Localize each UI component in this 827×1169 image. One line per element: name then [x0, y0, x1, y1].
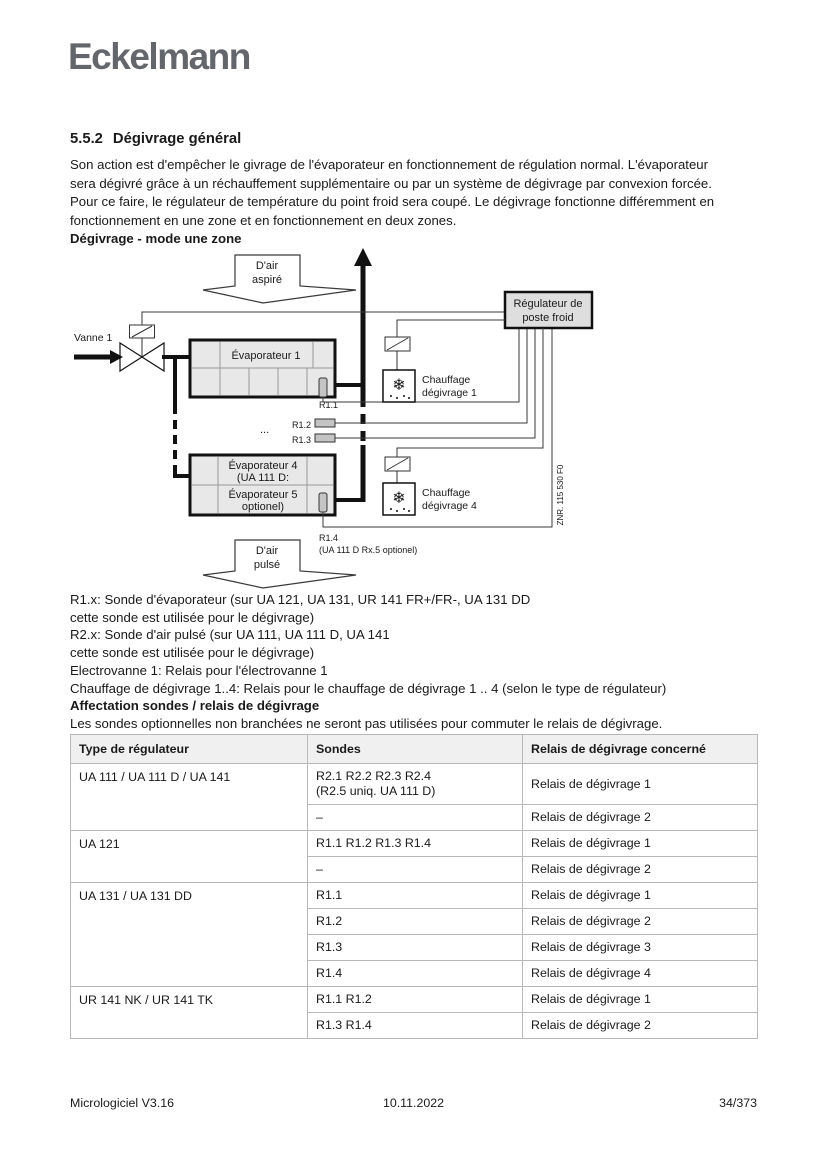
legend-block: R1.x: Sonde d'évaporateur (sur UA 121, U…	[70, 591, 770, 733]
sensor-r14-note: (UA 111 D Rx.5 optionel)	[319, 545, 417, 555]
snowflake-icon: ❄	[392, 377, 405, 394]
air-duct	[354, 248, 372, 502]
col-header-relais: Relais de dégivrage concerné	[523, 735, 758, 764]
legend-line: Chauffage de dégivrage 1..4: Relais pour…	[70, 680, 770, 698]
cell-type: UA 121	[71, 831, 308, 883]
air-in-label: aspiré	[252, 274, 282, 286]
cell-relais: Relais de dégivrage 1	[523, 883, 758, 909]
cell-sondes: R1.2	[308, 909, 523, 935]
section-title: Dégivrage général	[113, 131, 241, 147]
evaporator45-box: Évaporateur 4 (UA 111 D: Évaporateur 5 o…	[190, 455, 335, 515]
assignment-heading: Affectation sondes / relais de dégivrage	[70, 697, 770, 715]
sensor-r14-label: R1.4	[319, 533, 338, 543]
cell-type: UA 131 / UA 131 DD	[71, 883, 308, 987]
sensor-r12-label: R1.2	[292, 420, 311, 430]
legend-line: Electrovanne 1: Relais pour l'électrovan…	[70, 662, 770, 680]
cell-type: UA 111 / UA 111 D / UA 141	[71, 764, 308, 831]
heater4-relay-icon	[385, 457, 410, 483]
heater1-label: Chauffage	[422, 374, 470, 386]
sensor-r11-icon	[319, 378, 327, 397]
duct-up-arrowhead	[354, 248, 372, 266]
air-in-arrow: D'air aspiré	[203, 255, 356, 303]
legend-line: R2.x: Sonde d'air pulsé (sur UA 111, UA …	[70, 626, 770, 644]
evaporator1-box: Évaporateur 1	[190, 340, 335, 397]
wire-r11	[323, 328, 519, 402]
cell-sondes: –	[308, 805, 523, 831]
cell-relais: Relais de dégivrage 1	[523, 987, 758, 1013]
heater4-label2: dégivrage 4	[422, 500, 477, 512]
evaporator4-label2: (UA 111 D:	[237, 472, 289, 484]
cell-relais: Relais de dégivrage 1	[523, 764, 758, 805]
intro-line: Son action est d'empêcher le givrage de …	[70, 156, 770, 175]
ellipsis-label: ...	[260, 424, 269, 436]
sensor-r13-icon	[315, 434, 335, 442]
evaporator4-label: Évaporateur 4	[228, 459, 297, 472]
cell-relais: Relais de dégivrage 2	[523, 857, 758, 883]
cell-relais: Relais de dégivrage 2	[523, 1013, 758, 1039]
evaporator5-label2: optionel)	[242, 501, 284, 513]
section-number: 5.5.2	[70, 131, 103, 147]
table-row: UR 141 NK / UR 141 TK R1.1 R1.2 Relais d…	[71, 987, 758, 1013]
cell-relais: Relais de dégivrage 2	[523, 805, 758, 831]
company-logo: Eckelmann	[68, 36, 250, 78]
cell-relais: Relais de dégivrage 1	[523, 831, 758, 857]
cell-sondes: R1.1 R1.2 R1.3 R1.4	[308, 831, 523, 857]
cell-relais: Relais de dégivrage 2	[523, 909, 758, 935]
heater4-icon: ❄	[383, 483, 415, 515]
heater1-label2: dégivrage 1	[422, 387, 477, 399]
air-out-label2: pulsé	[254, 559, 280, 571]
inlet-arrow	[74, 350, 123, 364]
footer-version: Micrologiciel V3.16	[70, 1096, 174, 1110]
cell-relais: Relais de dégivrage 3	[523, 935, 758, 961]
regulator-label: Régulateur de	[513, 298, 582, 310]
defrost-diagram-svg: D'air aspiré Vanne 1	[70, 245, 760, 595]
regulator-label2: poste froid	[522, 312, 573, 324]
cell-sondes-line2: (R2.5 uniq. UA 111 D)	[316, 784, 514, 799]
wire-regulator-to-valve-relay	[142, 312, 505, 325]
intro-line: fonctionnement en une zone et en fonctio…	[70, 212, 770, 231]
regulator-box: Régulateur de poste froid	[505, 292, 592, 328]
col-header-type: Type de régulateur	[71, 735, 308, 764]
wire-heater1-relay	[397, 320, 505, 337]
evaporator1-label: Évaporateur 1	[231, 349, 300, 362]
part-number-label: ZNR. 115 530 F0	[556, 464, 565, 525]
evaporator5-label: Évaporateur 5	[228, 488, 297, 501]
sensor-r13-label: R1.3	[292, 435, 311, 445]
intro-line: sera dégivré grâce à un réchauffement su…	[70, 175, 770, 194]
sensor-r14-icon	[319, 493, 327, 512]
col-header-sondes: Sondes	[308, 735, 523, 764]
heater1-icon: ❄	[383, 370, 415, 402]
section-heading: 5.5.2Dégivrage général	[70, 131, 241, 147]
cell-type: UR 141 NK / UR 141 TK	[71, 987, 308, 1039]
intro-line: Pour ce faire, le régulateur de températ…	[70, 193, 770, 212]
cell-sondes: R2.1 R2.2 R2.3 R2.4 (R2.5 uniq. UA 111 D…	[308, 764, 523, 805]
air-in-label: D'air	[256, 260, 279, 272]
table-row: UA 111 / UA 111 D / UA 141 R2.1 R2.2 R2.…	[71, 764, 758, 805]
assignment-note: Les sondes optionnelles non branchées ne…	[70, 715, 770, 733]
cell-sondes: R1.4	[308, 961, 523, 987]
table-row: UA 121 R1.1 R1.2 R1.3 R1.4 Relais de dég…	[71, 831, 758, 857]
valve-label: Vanne 1	[74, 332, 112, 344]
cell-sondes: R1.1	[308, 883, 523, 909]
heater4-label: Chauffage	[422, 487, 470, 499]
cell-sondes: –	[308, 857, 523, 883]
pipe-branch-to-evap4	[173, 357, 190, 476]
cell-relais: Relais de dégivrage 4	[523, 961, 758, 987]
legend-line: cette sonde est utilisée pour le dégivra…	[70, 609, 770, 627]
legend-line: cette sonde est utilisée pour le dégivra…	[70, 644, 770, 662]
table-header-row: Type de régulateur Sondes Relais de dégi…	[71, 735, 758, 764]
intro-paragraph: Son action est d'empêcher le givrage de …	[70, 156, 770, 249]
cell-sondes: R1.3 R1.4	[308, 1013, 523, 1039]
heater1-relay-icon	[385, 337, 410, 370]
cell-sondes: R1.1 R1.2	[308, 987, 523, 1013]
air-out-label: D'air	[256, 545, 279, 557]
legend-line: R1.x: Sonde d'évaporateur (sur UA 121, U…	[70, 591, 770, 609]
table-row: UA 131 / UA 131 DD R1.1 Relais de dégivr…	[71, 883, 758, 909]
cell-sondes-line1: R2.1 R2.2 R2.3 R2.4	[316, 769, 514, 784]
footer-page-number: 34/373	[719, 1096, 757, 1110]
sensor-r12-icon	[315, 419, 335, 427]
cell-sondes: R1.3	[308, 935, 523, 961]
snowflake-icon: ❄	[392, 490, 405, 507]
assignment-table: Type de régulateur Sondes Relais de dégi…	[70, 734, 758, 1039]
defrost-diagram: D'air aspiré Vanne 1	[70, 245, 760, 595]
